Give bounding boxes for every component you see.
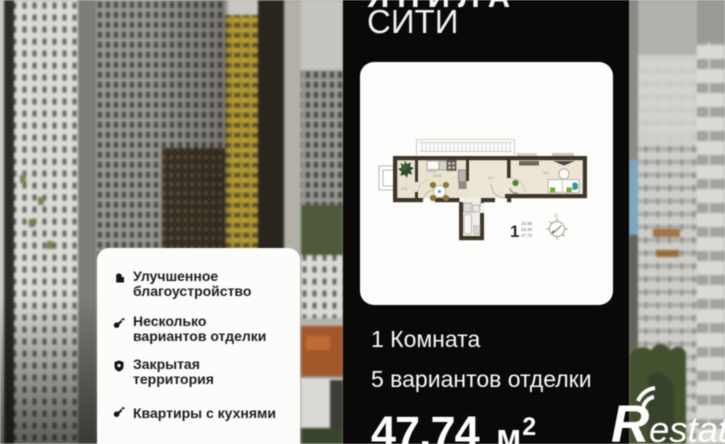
svg-text:15.68: 15.68 (521, 221, 533, 226)
svg-text:С: С (555, 213, 559, 218)
svg-text:43.34: 43.34 (521, 227, 533, 232)
svg-text:estate: estate (649, 409, 725, 444)
svg-text:15.2: 15.2 (543, 171, 549, 175)
svg-text:11.2: 11.2 (488, 176, 494, 180)
svg-text:1: 1 (510, 222, 519, 241)
svg-text:4.95: 4.95 (401, 187, 407, 191)
svg-text:47.74: 47.74 (521, 233, 533, 238)
svg-text:15.68: 15.68 (433, 174, 441, 178)
